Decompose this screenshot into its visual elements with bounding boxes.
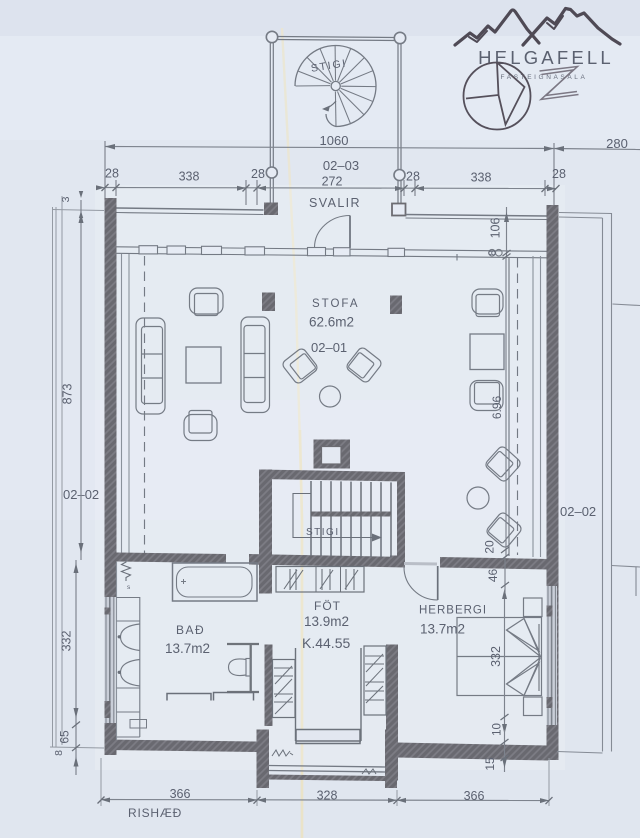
svg-text:338: 338: [471, 171, 492, 185]
svg-text:STIGI: STIGI: [306, 527, 340, 538]
svg-text:272: 272: [322, 175, 343, 189]
svg-text:02–02: 02–02: [560, 504, 596, 519]
svg-text:02–03: 02–03: [323, 158, 359, 173]
svg-text:62.6m2: 62.6m2: [309, 315, 354, 330]
svg-text:28: 28: [552, 167, 566, 181]
svg-text:28: 28: [406, 170, 420, 184]
svg-text:46: 46: [486, 569, 500, 583]
svg-text:8: 8: [53, 750, 65, 756]
svg-text:28: 28: [105, 167, 119, 181]
svg-text:SVALIR: SVALIR: [309, 196, 361, 210]
svg-text:332: 332: [489, 646, 503, 667]
svg-text:106: 106: [489, 218, 503, 239]
svg-text:366: 366: [464, 789, 485, 803]
svg-text:280: 280: [606, 136, 628, 151]
svg-text:13.7m2: 13.7m2: [165, 641, 210, 656]
svg-text:13.7m2: 13.7m2: [420, 622, 465, 637]
svg-text:02–01: 02–01: [311, 340, 347, 355]
svg-text:332: 332: [60, 631, 74, 652]
svg-text:873: 873: [61, 384, 75, 405]
svg-text:338: 338: [179, 170, 200, 184]
svg-text:1060: 1060: [320, 133, 349, 148]
svg-text:20: 20: [483, 540, 497, 554]
svg-text:K.44.55: K.44.55: [302, 635, 350, 651]
svg-text:3: 3: [60, 196, 72, 202]
svg-text:BAÐ: BAÐ: [176, 623, 205, 637]
svg-text:328: 328: [317, 789, 338, 803]
svg-text:FÖT: FÖT: [314, 599, 341, 613]
svg-text:6.96: 6.96: [490, 395, 504, 419]
svg-text:28: 28: [251, 167, 265, 181]
svg-text:65: 65: [58, 730, 72, 744]
svg-text:STOFA: STOFA: [312, 298, 360, 310]
svg-text:15: 15: [483, 757, 497, 771]
svg-text:13.9m2: 13.9m2: [304, 614, 349, 629]
svg-text:HERBERGI: HERBERGI: [419, 605, 487, 617]
svg-text:366: 366: [170, 787, 191, 801]
svg-text:8: 8: [487, 250, 499, 256]
svg-text:RISHÆÐ: RISHÆÐ: [128, 806, 182, 820]
svg-text:10: 10: [492, 723, 504, 736]
